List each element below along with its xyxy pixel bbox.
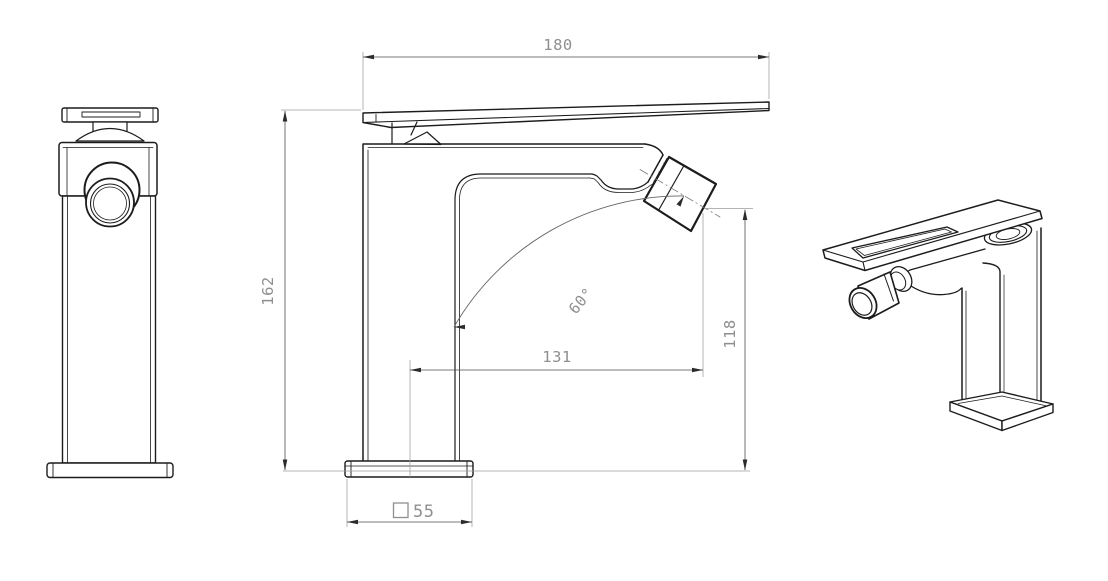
side-lever-wedge — [404, 132, 441, 145]
side-base — [345, 461, 473, 477]
perspective-view — [823, 200, 1053, 431]
side-view — [345, 102, 769, 477]
front-handle — [62, 108, 158, 122]
persp-column — [962, 228, 1041, 418]
front-view — [47, 108, 173, 478]
dim-label-55: 55 — [413, 502, 434, 522]
technical-drawing-canvas: 180 162 131 118 60° 55 — [0, 0, 1108, 581]
side-body — [363, 144, 667, 461]
faucet-technical-drawing: 180 162 131 118 60° 55 — [0, 0, 1108, 581]
dimension-lines — [285, 57, 769, 522]
arrowheads — [283, 55, 769, 525]
dim-label-162: 162 — [259, 276, 277, 306]
side-aerator — [640, 157, 720, 231]
side-handle — [363, 102, 769, 128]
front-dome — [76, 129, 144, 142]
persp-spout — [844, 263, 916, 323]
front-base — [47, 463, 173, 478]
persp-base — [950, 392, 1053, 431]
square-symbol — [394, 503, 409, 518]
dim-label-118: 118 — [721, 319, 739, 349]
dim-label-131: 131 — [542, 348, 572, 366]
dim-label-180: 180 — [543, 36, 573, 54]
dim-label-60deg: 60° — [565, 284, 597, 317]
extension-lines — [281, 52, 769, 527]
dim-label-base: 55 — [394, 502, 435, 522]
